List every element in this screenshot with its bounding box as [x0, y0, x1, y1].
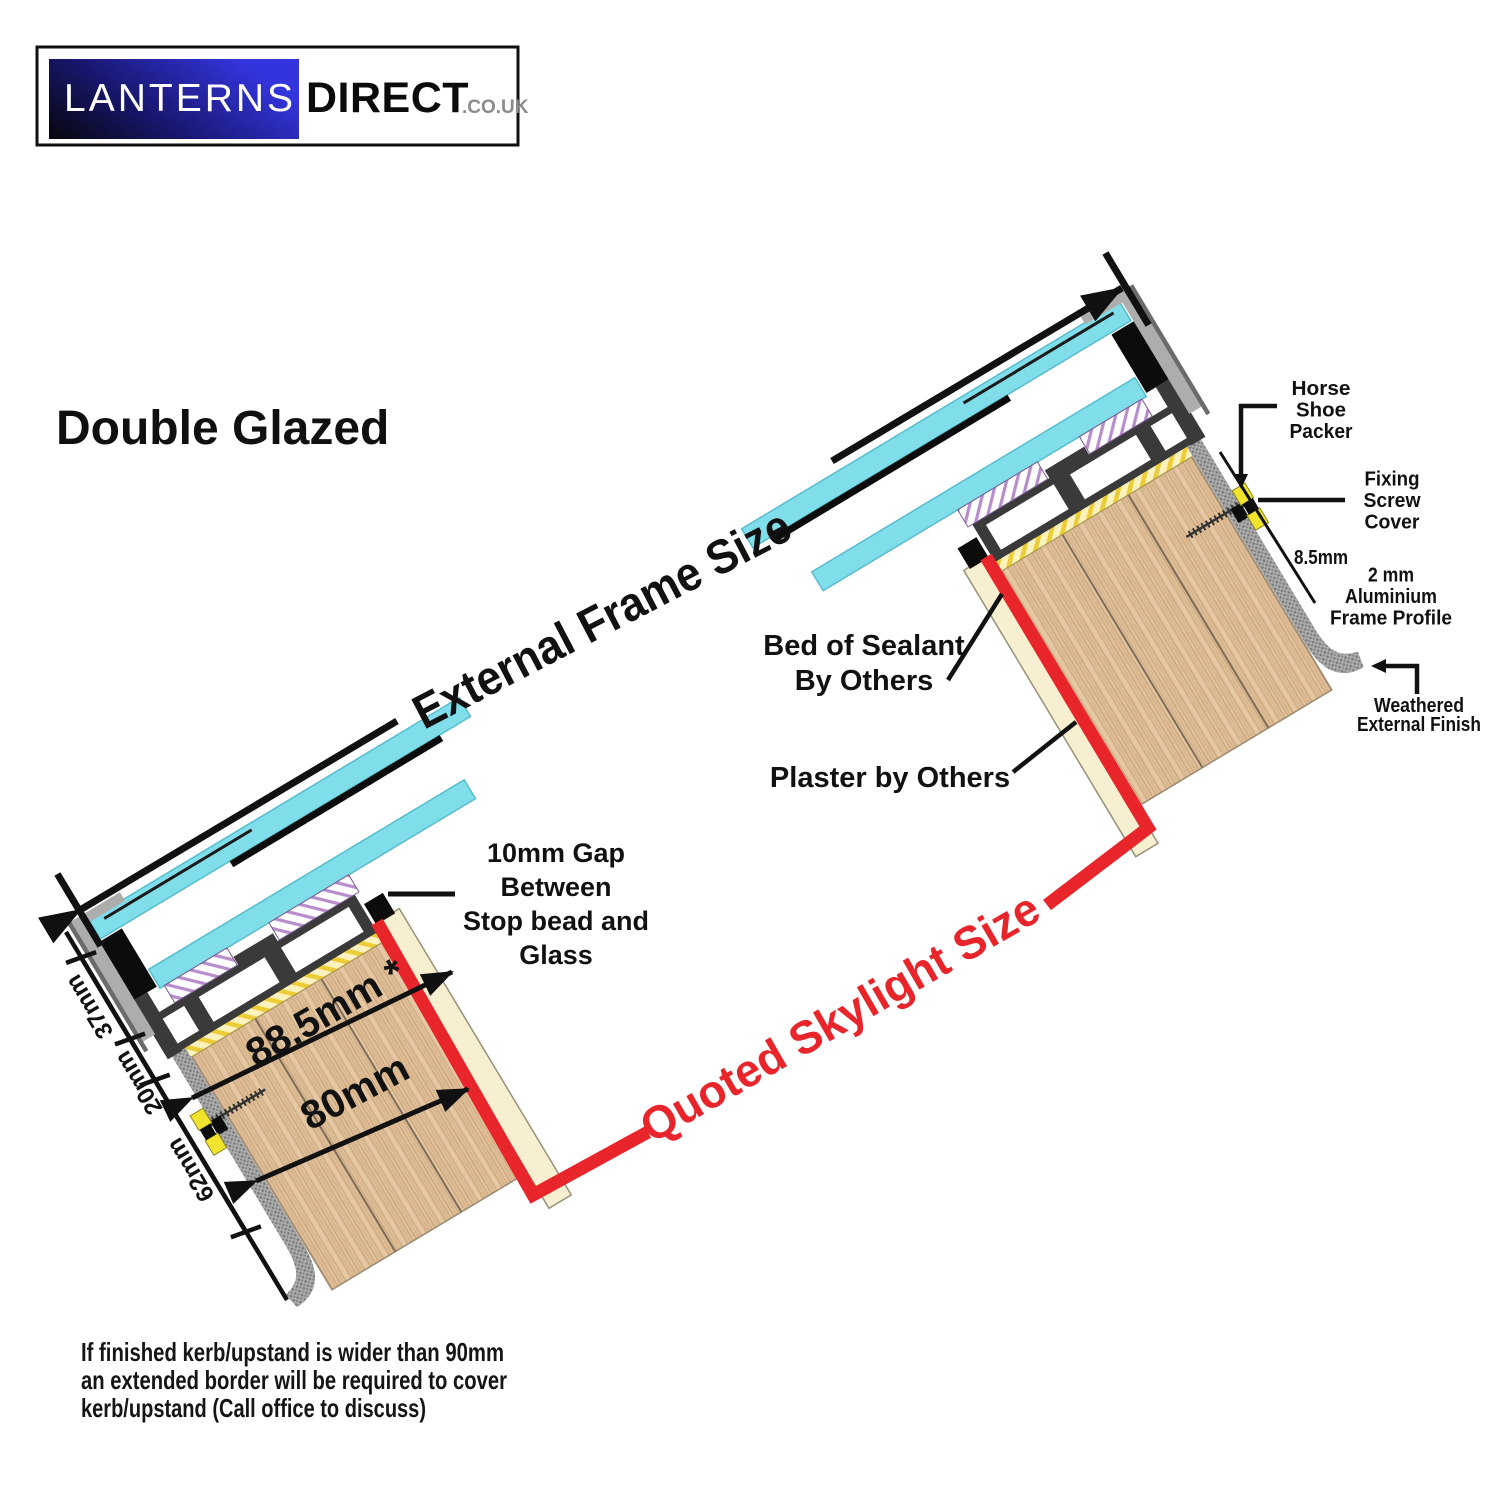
svg-text:an extended border will be req: an extended border will be required to c…: [81, 1365, 507, 1395]
svg-text:Stop bead and: Stop bead and: [463, 906, 649, 936]
svg-text:kerb/upstand (Call office to d: kerb/upstand (Call office to discuss): [81, 1393, 426, 1423]
svg-text:.CO.UK: .CO.UK: [462, 97, 529, 118]
svg-text:Screw: Screw: [1364, 490, 1421, 512]
svg-text:Frame Profile: Frame Profile: [1330, 608, 1452, 630]
svg-text:Shoe: Shoe: [1296, 400, 1346, 422]
svg-text:Bed of Sealant: Bed of Sealant: [763, 630, 965, 662]
svg-text:Fixing: Fixing: [1365, 469, 1420, 491]
svg-text:Cover: Cover: [1365, 512, 1420, 534]
svg-text:External Finish: External Finish: [1357, 714, 1481, 736]
svg-text:Double Glazed: Double Glazed: [56, 402, 389, 455]
svg-text:Horse: Horse: [1292, 378, 1351, 400]
svg-text:8.5mm: 8.5mm: [1294, 547, 1348, 569]
svg-text:Packer: Packer: [1290, 421, 1353, 443]
svg-text:By Others: By Others: [795, 665, 934, 697]
svg-text:LANTERNS: LANTERNS: [64, 77, 296, 120]
svg-text:Plaster by Others: Plaster by Others: [770, 762, 1010, 794]
svg-text:2 mm: 2 mm: [1368, 565, 1414, 587]
svg-text:DIRECT: DIRECT: [306, 74, 469, 122]
svg-text:Aluminium: Aluminium: [1345, 586, 1437, 608]
svg-text:Glass: Glass: [519, 940, 593, 970]
svg-text:Between: Between: [500, 872, 611, 902]
svg-text:If finished kerb/upstand is wi: If finished kerb/upstand is wider than 9…: [81, 1337, 504, 1367]
svg-text:10mm Gap: 10mm Gap: [487, 838, 625, 868]
